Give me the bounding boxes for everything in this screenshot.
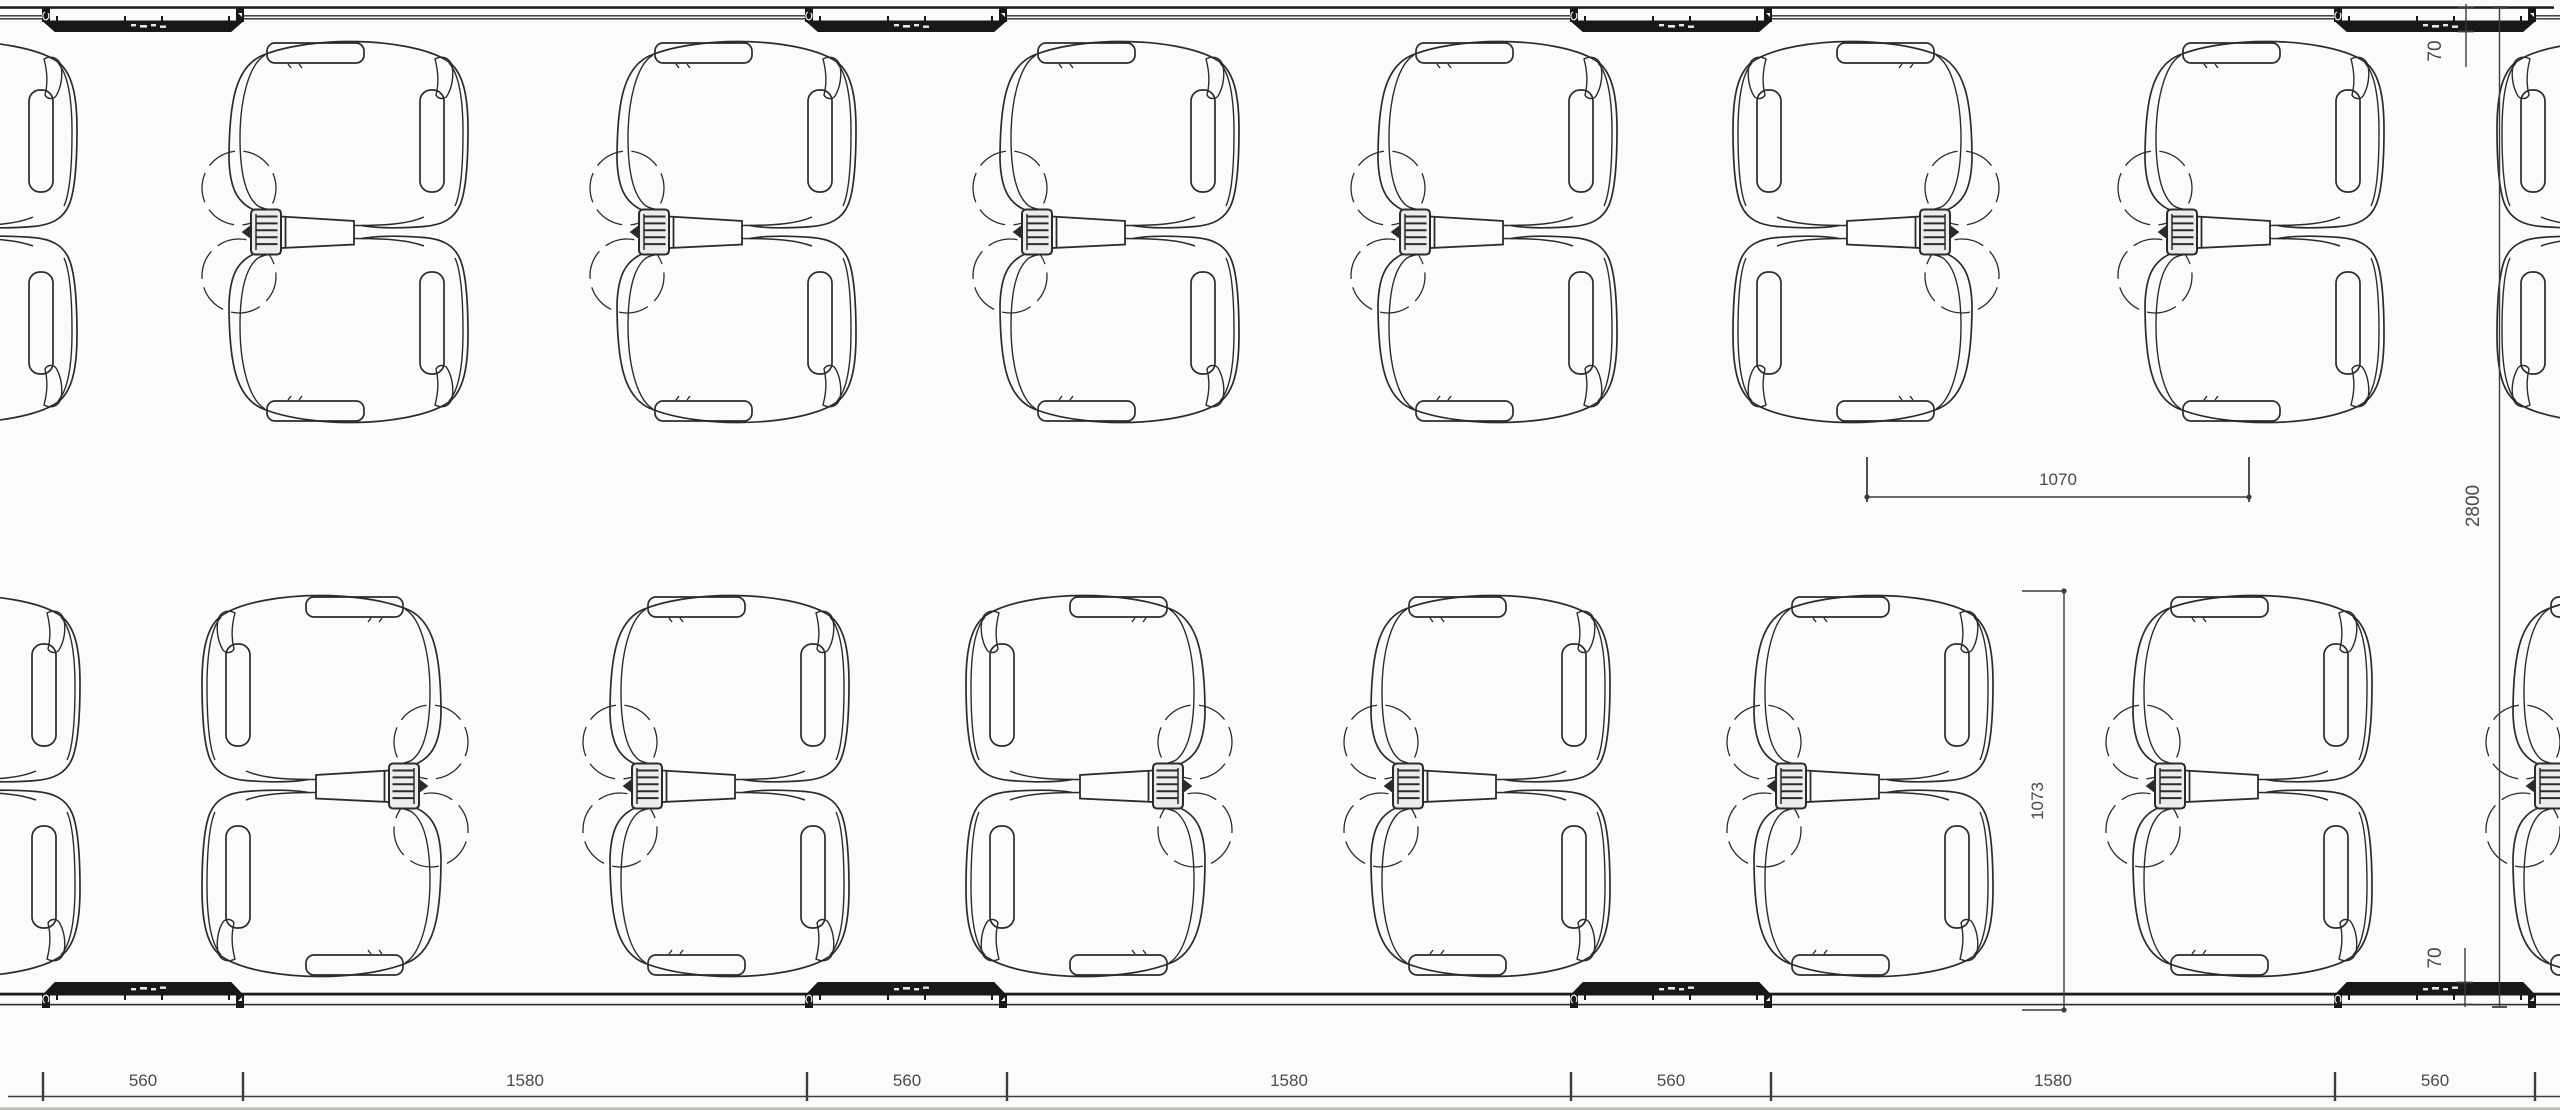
svg-text:1070: 1070	[2039, 470, 2077, 489]
svg-text:70: 70	[2425, 947, 2446, 968]
svg-text:560: 560	[893, 1071, 921, 1090]
svg-text:70: 70	[2425, 40, 2446, 61]
svg-text:560: 560	[2421, 1071, 2449, 1090]
svg-text:560: 560	[1657, 1071, 1685, 1090]
svg-text:1073: 1073	[2028, 782, 2047, 820]
svg-text:560: 560	[129, 1071, 157, 1090]
svg-text:2800: 2800	[2463, 485, 2484, 527]
svg-text:1580: 1580	[506, 1071, 544, 1090]
svg-text:1580: 1580	[1270, 1071, 1308, 1090]
svg-text:1580: 1580	[2034, 1071, 2072, 1090]
